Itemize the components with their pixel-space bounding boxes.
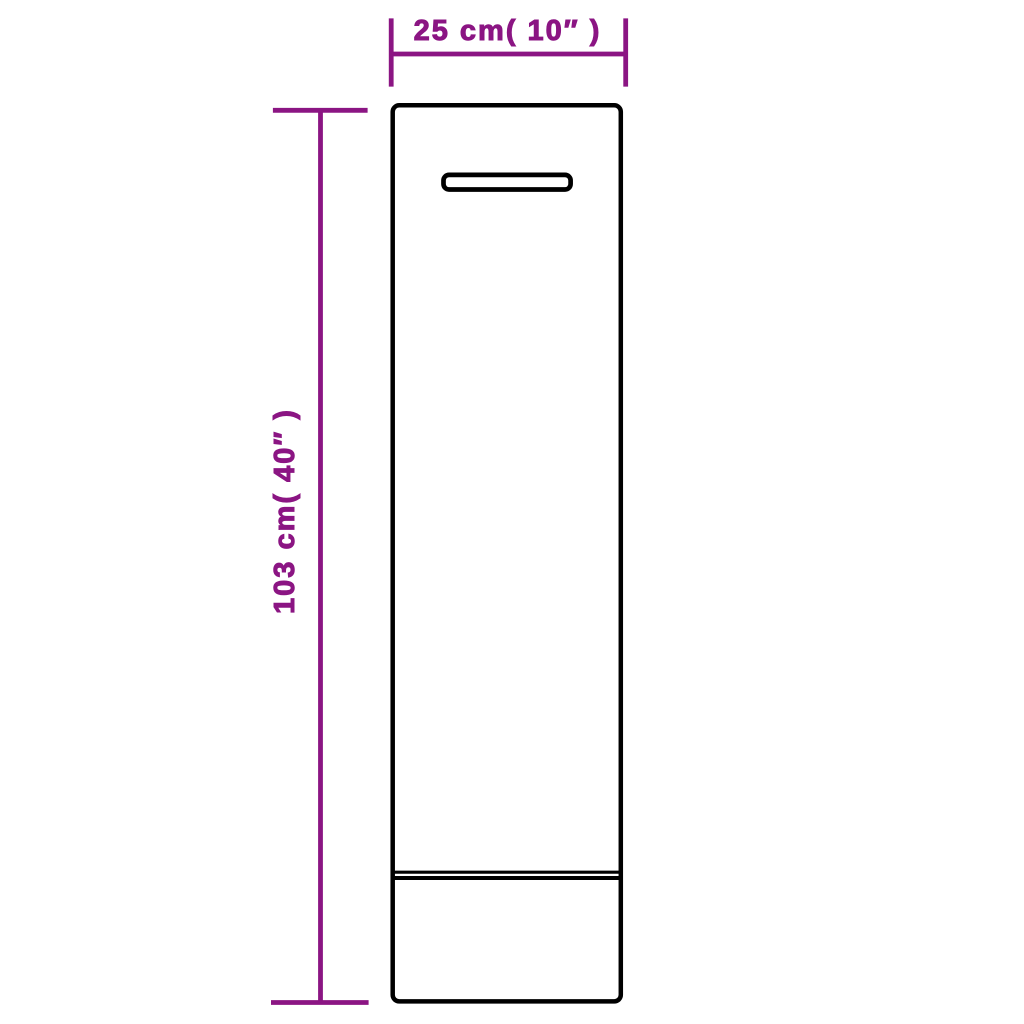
svg-text:25 cm( 10″ ): 25 cm( 10″ )	[414, 15, 602, 47]
svg-text:103 cm( 40″ ): 103 cm( 40″ )	[269, 408, 301, 614]
